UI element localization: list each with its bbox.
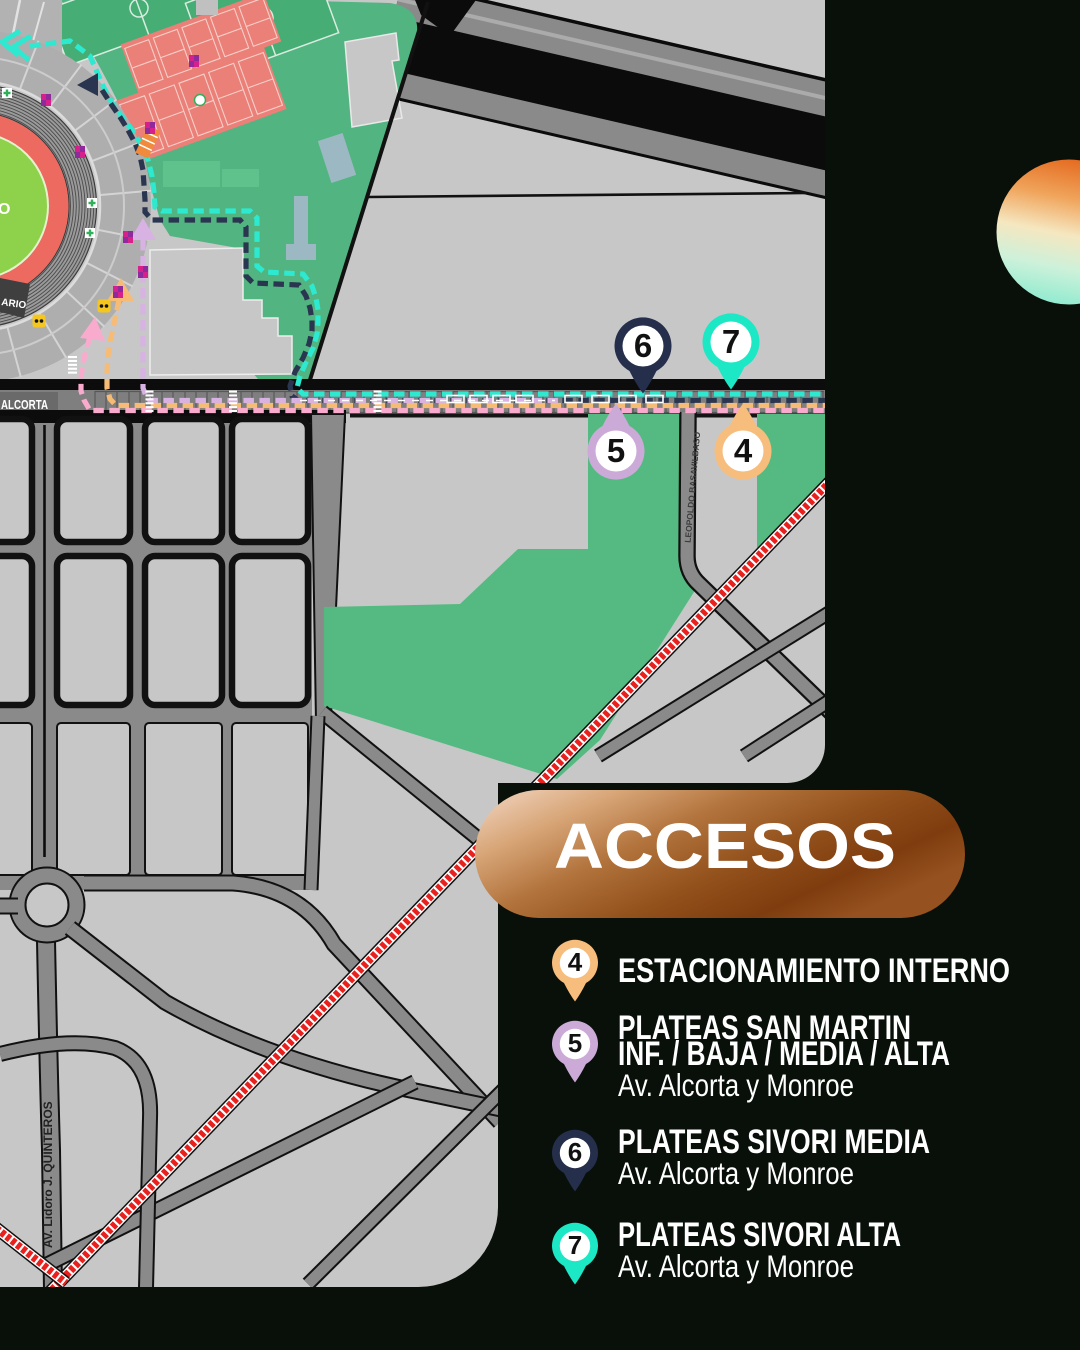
svg-text:ESTACIONAMIENTO INTERNO: ESTACIONAMIENTO INTERNO [618,952,1010,990]
svg-text:4: 4 [568,947,583,977]
svg-text:AV. Lidoro J. QUINTEROS: AV. Lidoro J. QUINTEROS [41,1101,55,1248]
svg-text:O: O [0,201,10,218]
svg-text:Av. Alcorta y Monroe: Av. Alcorta y Monroe [618,1248,854,1284]
svg-text:Av. Alcorta y Monroe: Av. Alcorta y Monroe [618,1155,854,1191]
svg-text:7: 7 [722,323,740,360]
svg-text:5: 5 [568,1028,582,1058]
svg-text:ALCORTA: ALCORTA [1,398,48,412]
svg-text:Av. Alcorta y Monroe: Av. Alcorta y Monroe [618,1067,854,1103]
svg-text:5: 5 [607,432,625,469]
svg-text:7: 7 [568,1230,582,1260]
svg-text:4: 4 [734,432,753,469]
svg-text:ACCESOS: ACCESOS [554,810,896,882]
svg-text:6: 6 [634,327,652,364]
svg-text:6: 6 [568,1137,582,1167]
